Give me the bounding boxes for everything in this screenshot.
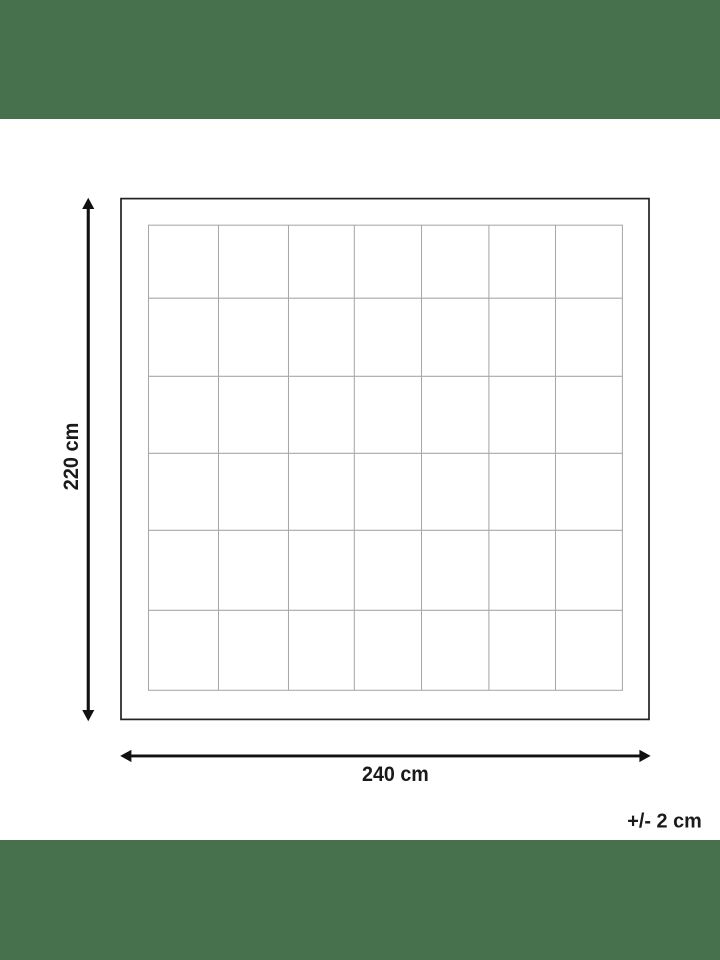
svg-text:240 cm: 240 cm [362,763,429,786]
svg-text:220 cm: 220 cm [59,423,83,491]
svg-text:+/- 2 cm: +/- 2 cm [627,810,702,833]
